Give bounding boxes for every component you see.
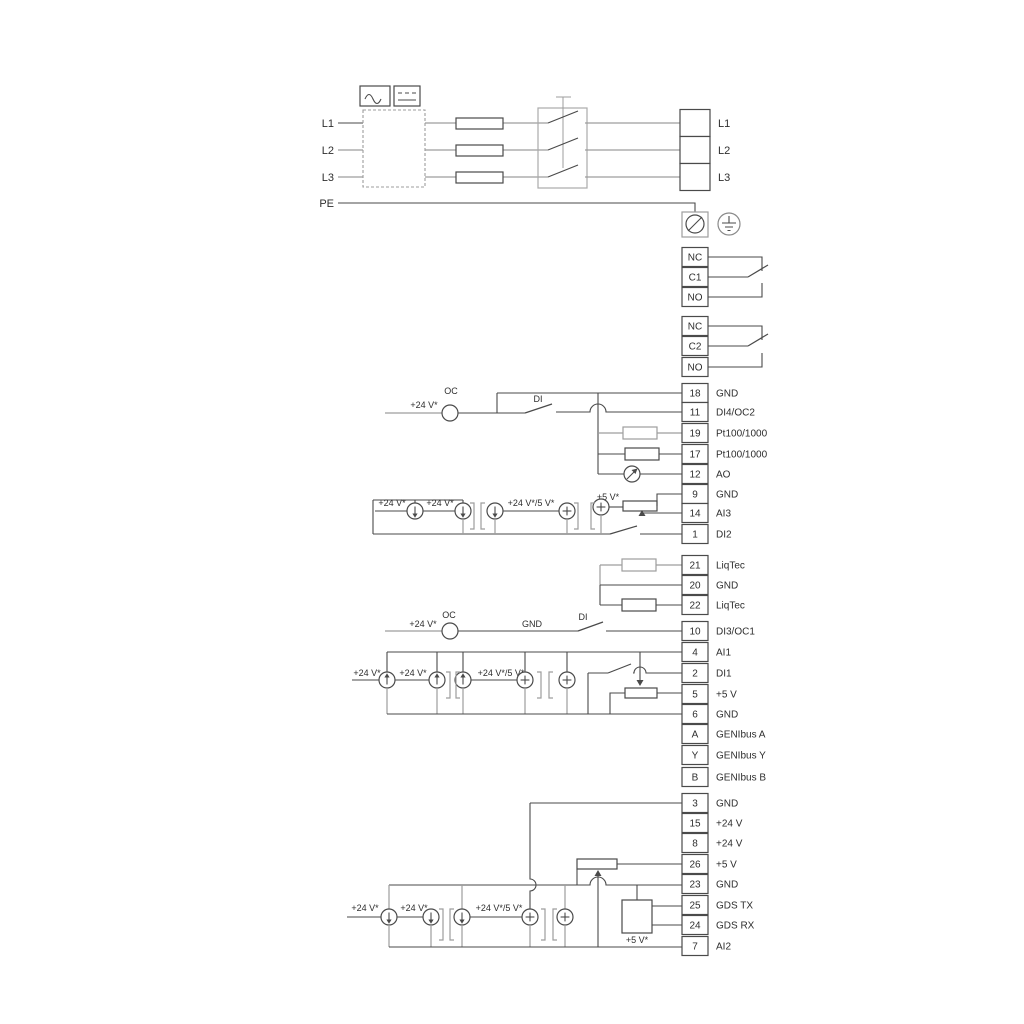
current-source-icon	[557, 909, 573, 925]
terminal-label: GENIbus A	[716, 730, 766, 741]
terminal-number: 1	[692, 530, 698, 541]
relay-terminal-label: NO	[688, 363, 703, 374]
fuse-l2	[456, 145, 503, 156]
terminal-label: GENIbus B	[716, 773, 766, 784]
terminal-label: GDS TX	[716, 901, 753, 912]
terminal-number: 18	[689, 389, 701, 400]
mains-input-label: L3	[322, 172, 334, 184]
terminal-label: +24 V	[716, 819, 743, 830]
terminal-number: A	[692, 730, 699, 741]
terminal-number: 26	[689, 860, 701, 871]
potentiometer-ai2	[577, 859, 617, 869]
current-sink-icon	[454, 909, 470, 925]
mains-input-label: L1	[322, 118, 334, 130]
mains-output-label: L1	[718, 118, 730, 130]
potentiometer-ai3	[623, 501, 657, 511]
v24-label: +24 V*	[353, 668, 381, 678]
gnd-label: GND	[522, 619, 543, 629]
terminal-number: 10	[689, 627, 701, 638]
mains-output-label: L2	[718, 145, 730, 157]
terminal-number: 2	[692, 669, 698, 680]
terminal-number: 3	[692, 799, 698, 810]
fuse-l1	[456, 118, 503, 129]
mains-output-terminal-block: L1L2L3	[680, 110, 730, 191]
terminal-label: +24 V	[716, 839, 743, 850]
current-source-icon	[455, 672, 471, 688]
terminal-label: DI3/OC1	[716, 627, 755, 638]
di-label: DI	[534, 394, 543, 404]
wiring-diagram-page: L1L2L3 +24 V* OC DI	[0, 0, 1024, 1024]
terminal-label: GDS RX	[716, 921, 755, 932]
terminal-number: 4	[692, 648, 698, 659]
current-source-icon	[522, 909, 538, 925]
v24-label: +24 V*	[351, 903, 379, 913]
terminal-label: LiqTec	[716, 561, 745, 572]
oc-label: OC	[444, 386, 458, 396]
terminal-number: 15	[689, 819, 701, 830]
v24-label: +24 V*	[399, 668, 427, 678]
terminal-label: AI3	[716, 509, 731, 520]
v24-label: +24 V*	[410, 400, 438, 410]
terminal-label: +5 V	[716, 690, 737, 701]
current-sink-icon	[381, 909, 397, 925]
relay-terminal-label: C1	[689, 273, 702, 284]
terminal-number: 5	[692, 690, 698, 701]
terminal-label: DI2	[716, 530, 732, 541]
relay-terminal-label: NC	[688, 322, 702, 333]
potentiometer-ai1	[625, 688, 657, 698]
current-sink-icon	[487, 503, 503, 519]
terminal-number: 20	[689, 581, 701, 592]
terminal-label: GENIbus Y	[716, 751, 766, 762]
terminal-number: 19	[689, 429, 701, 440]
current-source-icon	[559, 503, 575, 519]
terminal-label: AI2	[716, 942, 731, 953]
v24-label: +24 V*	[426, 498, 454, 508]
terminal-number: 11	[690, 408, 701, 419]
terminal-label: GND	[716, 710, 738, 721]
terminal-label: GND	[716, 490, 738, 501]
terminal-label: +5 V	[716, 860, 737, 871]
dc-symbol-box	[394, 86, 420, 106]
v24-label: +24 V*	[378, 498, 406, 508]
terminal-label: AO	[716, 470, 731, 481]
fuse-l3	[456, 172, 503, 183]
open-collector-icon	[442, 405, 458, 421]
terminal-number: 6	[692, 710, 698, 721]
v24-label: +24 V*	[400, 903, 428, 913]
terminal-label: Pt100/1000	[716, 429, 768, 440]
terminal-number: 7	[692, 942, 698, 953]
terminal-label: LiqTec	[716, 601, 745, 612]
gds-sensor-box	[622, 900, 652, 933]
terminal-number: 24	[689, 921, 701, 932]
terminal-label: GND	[716, 880, 738, 891]
terminal-label: GND	[716, 581, 738, 592]
current-sink-icon	[455, 503, 471, 519]
mains-output-label: L3	[718, 172, 730, 184]
current-source-icon	[379, 672, 395, 688]
terminal-number: 25	[689, 901, 701, 912]
terminal-number: 9	[692, 490, 698, 501]
terminal-number: 8	[692, 839, 698, 850]
mains-input-label: L2	[322, 145, 334, 157]
v5-label: +5 V*	[626, 935, 649, 945]
relay-terminal-label: C2	[689, 342, 702, 353]
relay-terminal-label: NC	[688, 253, 702, 264]
current-source-icon	[559, 672, 575, 688]
terminal-number: Y	[692, 751, 699, 762]
pt100-sensor-2	[625, 448, 659, 460]
background	[0, 0, 1024, 1024]
terminal-label: AI1	[716, 648, 731, 659]
current-sink-icon	[423, 909, 439, 925]
terminal-label: Pt100/1000	[716, 450, 768, 461]
mains-input-label: PE	[319, 198, 334, 210]
mains-output-terminal	[680, 137, 710, 164]
terminal-label: GND	[716, 389, 738, 400]
v24-label: +24 V*	[409, 619, 437, 629]
terminal-label: GND	[716, 799, 738, 810]
terminal-number: 14	[689, 509, 701, 520]
terminal-label: DI4/OC2	[716, 408, 755, 419]
open-collector-icon	[442, 623, 458, 639]
oc-label: OC	[442, 610, 456, 620]
v24v5-label: +24 V*/5 V*	[476, 903, 523, 913]
terminal-number: 22	[689, 601, 701, 612]
terminal-number: B	[692, 773, 699, 784]
liqtec-sensor-2	[622, 599, 656, 611]
pt100-sensor-1	[623, 427, 657, 439]
terminal-number: 12	[689, 470, 701, 481]
terminal-number: 23	[689, 880, 701, 891]
current-source-icon	[429, 672, 445, 688]
wiring-diagram: L1L2L3 +24 V* OC DI	[0, 0, 1024, 1024]
mains-output-terminal	[680, 164, 710, 191]
relay-terminal-label: NO	[688, 293, 703, 304]
mains-output-terminal	[680, 110, 710, 137]
current-source-icon	[593, 499, 609, 515]
terminal-number: 17	[689, 450, 701, 461]
liqtec-sensor-1	[622, 559, 656, 571]
current-source-icon	[517, 672, 533, 688]
di-label: DI	[579, 612, 588, 622]
current-sink-icon	[407, 503, 423, 519]
terminal-number: 21	[689, 561, 701, 572]
v24v5-label: +24 V*/5 V*	[508, 498, 555, 508]
terminal-label: DI1	[716, 669, 732, 680]
